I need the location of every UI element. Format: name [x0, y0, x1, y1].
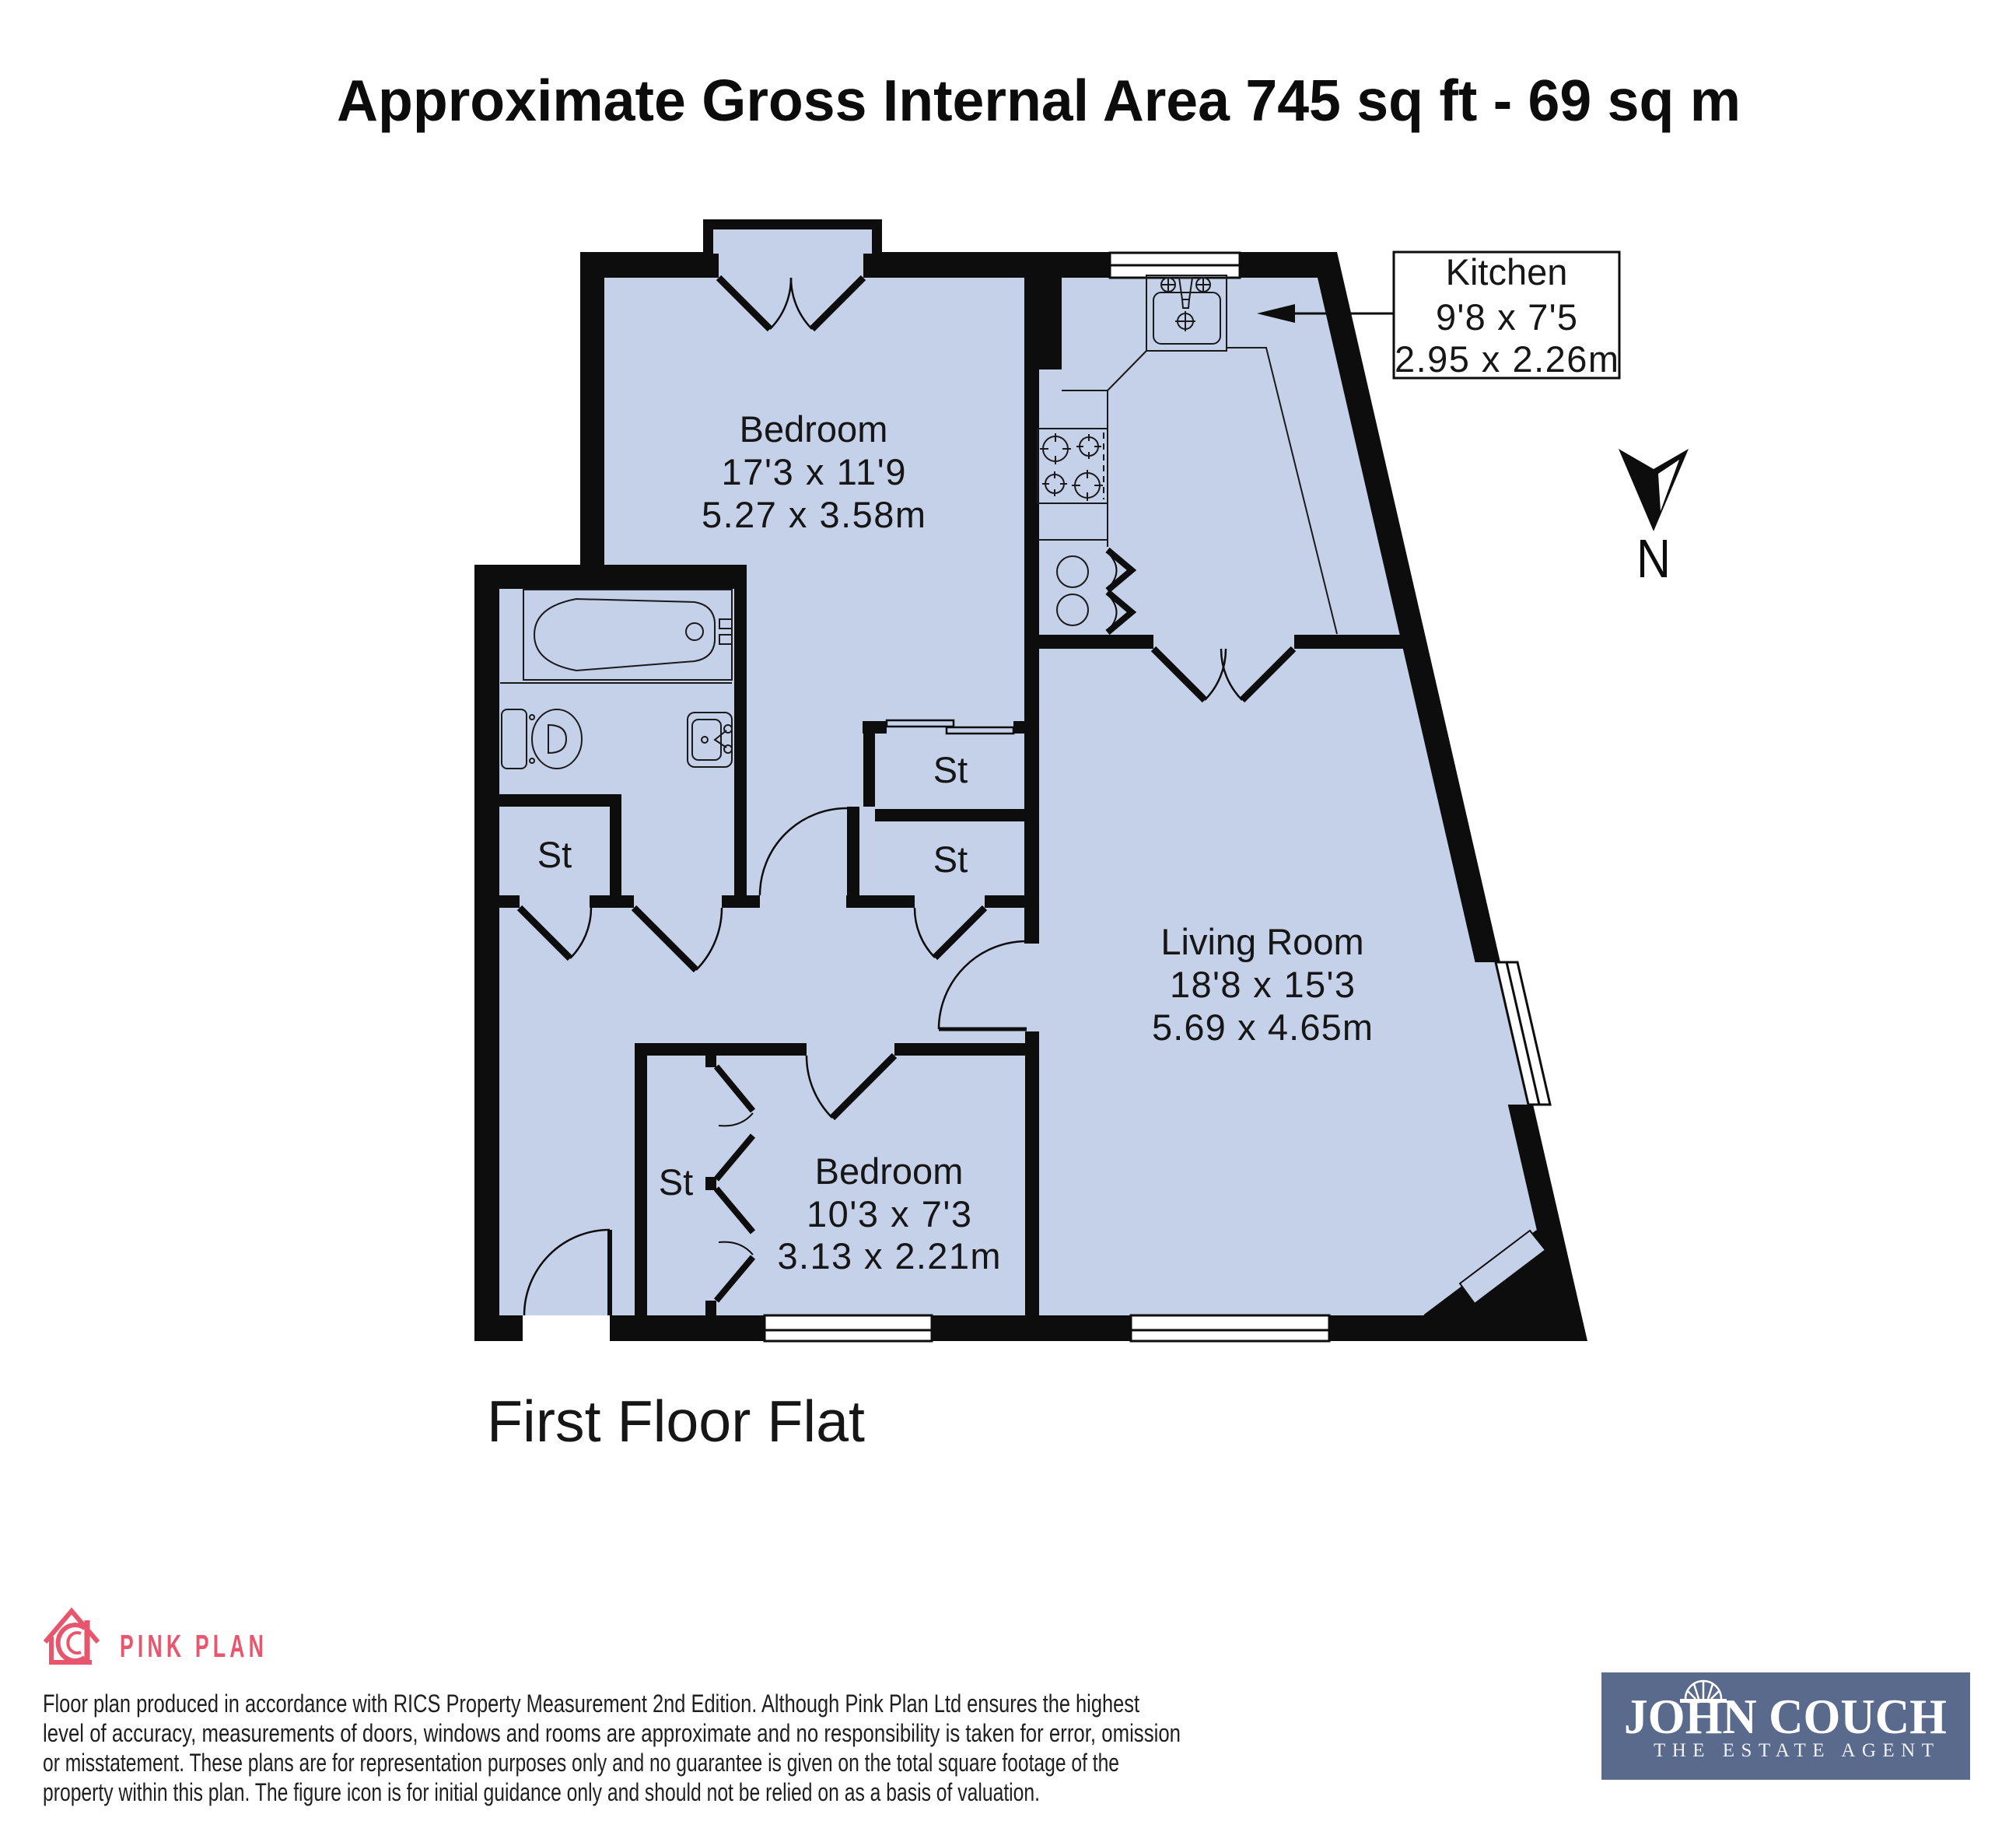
svg-text:Kitchen: Kitchen [1446, 251, 1568, 292]
svg-text:17'3 x 11'9: 17'3 x 11'9 [722, 451, 906, 492]
svg-text:St: St [537, 834, 572, 875]
svg-text:5.27 x 3.58m: 5.27 x 3.58m [702, 494, 926, 535]
svg-text:St: St [933, 839, 968, 880]
svg-text:18'8 x 15'3: 18'8 x 15'3 [1170, 964, 1355, 1005]
svg-text:10'3 x 7'3: 10'3 x 7'3 [807, 1193, 971, 1234]
svg-text:Approximate Gross Internal Are: Approximate Gross Internal Area 745 sq f… [337, 68, 1741, 133]
svg-text:THE ESTATE AGENT: THE ESTATE AGENT [1654, 1740, 1934, 1761]
svg-text:Bedroom: Bedroom [740, 408, 888, 450]
svg-text:JOHN COUCH: JOHN COUCH [1624, 1689, 1947, 1744]
svg-text:Floor plan produced in accorda: Floor plan produced in accordance with R… [43, 1690, 1139, 1718]
svg-text:Bedroom: Bedroom [815, 1150, 964, 1192]
svg-text:St: St [659, 1161, 693, 1203]
svg-text:St: St [933, 749, 968, 790]
svg-text:3.13 x 2.21m: 3.13 x 2.21m [778, 1235, 1001, 1276]
svg-text:PINK PLAN: PINK PLAN [120, 1628, 268, 1664]
svg-text:2.95 x 2.26m: 2.95 x 2.26m [1395, 338, 1619, 380]
svg-text:or misstatement. These plans a: or misstatement. These plans are for rep… [43, 1749, 1119, 1777]
svg-text:N: N [1636, 528, 1671, 589]
svg-text:First Floor Flat: First Floor Flat [487, 1389, 865, 1454]
svg-text:5.69 x 4.65m: 5.69 x 4.65m [1152, 1007, 1373, 1048]
svg-text:property within this plan. The: property within this plan. The figure ic… [43, 1778, 1040, 1806]
svg-text:Living Room: Living Room [1160, 921, 1363, 962]
svg-text:level of accuracy, measurement: level of accuracy, measurements of doors… [43, 1719, 1181, 1747]
